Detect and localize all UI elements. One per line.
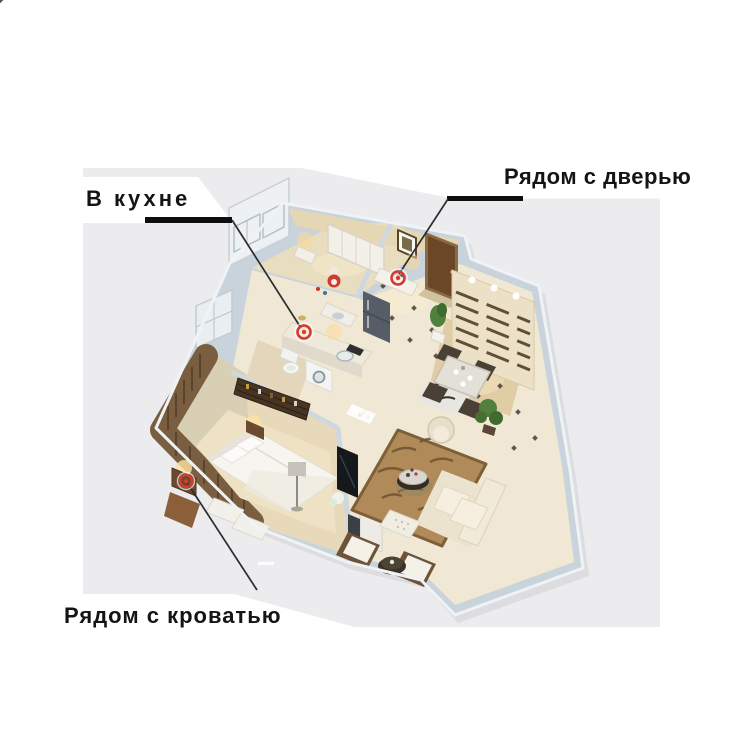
slat-wall-light: [469, 277, 476, 284]
photo-artifact-dash: [258, 562, 274, 565]
floor-tile-dots: [0, 0, 3, 3]
floorplan-canvas: В кухне Рядом с дверью Рядом с кроватью: [0, 0, 750, 750]
marker-kitchen: [295, 323, 313, 341]
teddy-bear: [330, 267, 339, 276]
marker-bed: [178, 473, 195, 490]
kitchen-sink: [337, 351, 353, 361]
kitchen-label-underline: [145, 217, 232, 223]
marker-door: [389, 269, 407, 287]
kitchen-label: В кухне: [86, 186, 190, 211]
floor-lamp-shade: [288, 462, 306, 476]
bed-label: Рядом с кроватью: [64, 603, 282, 628]
kids-lamp-glow: [297, 232, 313, 248]
floorplan-figure: В кухне Рядом с дверью Рядом с кроватью: [0, 0, 750, 750]
door-label: Рядом с дверью: [504, 164, 691, 189]
door-label-underline: [447, 196, 523, 201]
